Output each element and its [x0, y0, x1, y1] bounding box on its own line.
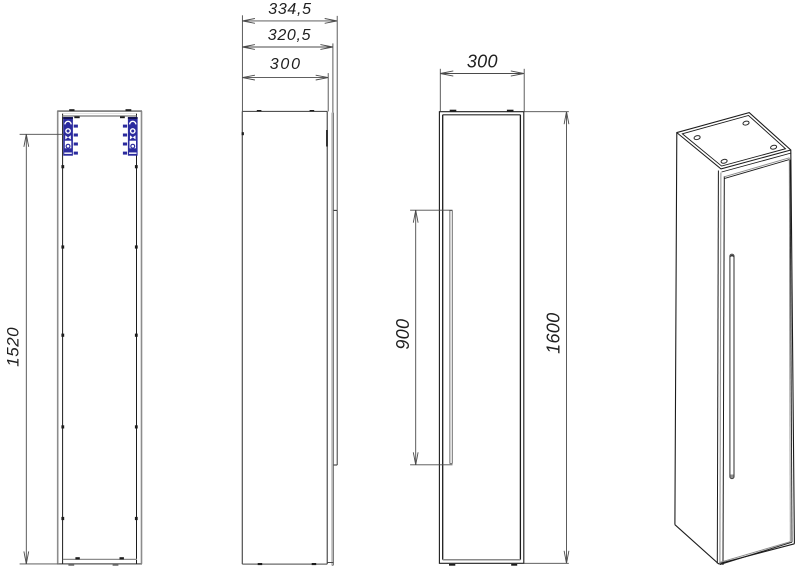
svg-text:1520: 1520	[4, 327, 23, 367]
svg-text:300: 300	[270, 56, 302, 73]
svg-text:1600: 1600	[544, 313, 564, 354]
svg-text:320,5: 320,5	[268, 27, 312, 44]
svg-text:300: 300	[467, 52, 498, 72]
svg-text:334,5: 334,5	[268, 1, 312, 18]
svg-text:900: 900	[393, 319, 413, 350]
